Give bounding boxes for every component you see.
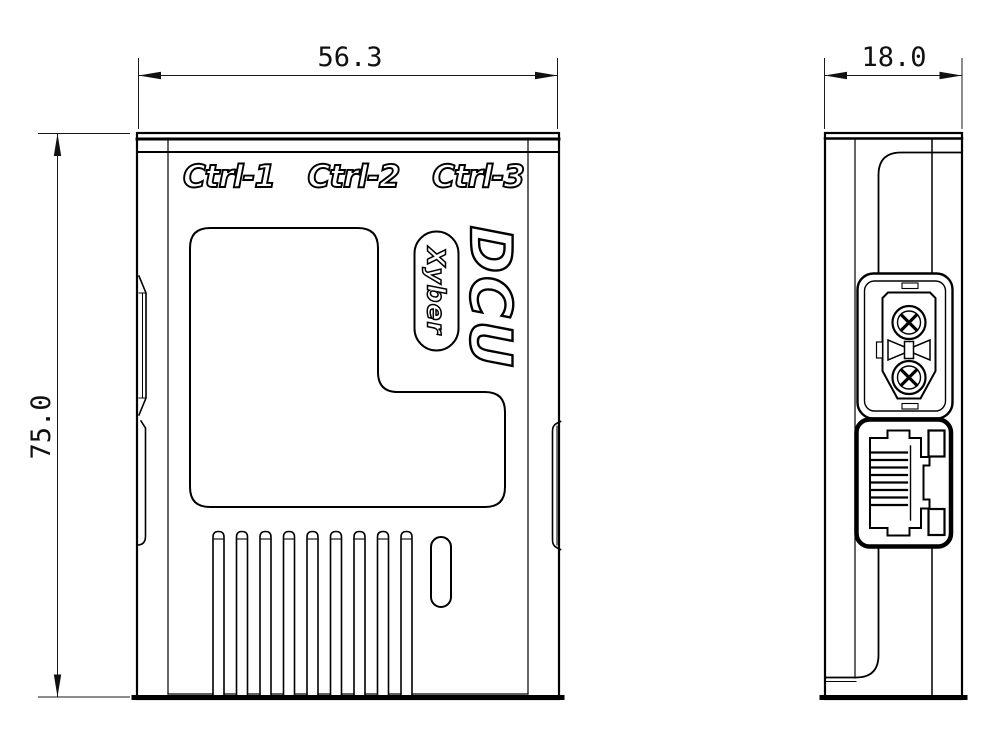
vent-slots bbox=[213, 532, 412, 697]
technical-drawing-sheet: 56.3 75.0 18.0 Ctrl-1 bbox=[0, 0, 1000, 737]
side-view bbox=[822, 133, 965, 699]
port-label-ctrl3: Ctrl-3 bbox=[432, 159, 524, 195]
dcu-logo: DCU bbox=[455, 218, 525, 378]
xt30-pin-upper bbox=[893, 306, 926, 339]
dim-height: 75.0 bbox=[26, 134, 130, 698]
xyber-brand-text: Xyber bbox=[422, 247, 451, 335]
port-labels-row: Ctrl-1 Ctrl-2 Ctrl-3 bbox=[183, 159, 524, 195]
xt30-pin-lower bbox=[893, 361, 926, 394]
xyber-brand-badge: Xyber bbox=[414, 231, 460, 352]
dim-width: 56.3 bbox=[139, 42, 558, 129]
xt30-power-connector bbox=[858, 274, 953, 419]
rj45-ethernet-jack bbox=[857, 420, 952, 547]
port-label-ctrl1: Ctrl-1 bbox=[183, 159, 275, 195]
port-label-ctrl2: Ctrl-2 bbox=[308, 159, 400, 195]
dim-height-label: 75.0 bbox=[26, 394, 57, 459]
dim-width-label: 56.3 bbox=[317, 42, 382, 73]
dim-depth-label: 18.0 bbox=[861, 42, 926, 73]
dim-depth: 18.0 bbox=[825, 42, 963, 129]
dcu-logo-text: DCU bbox=[457, 226, 523, 370]
